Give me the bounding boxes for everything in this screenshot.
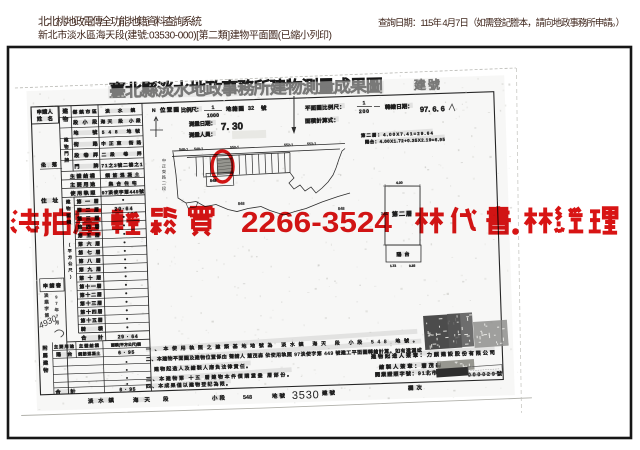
- svg-text:坐 落: 坐 落: [41, 161, 58, 169]
- svg-text:號: 號: [261, 104, 267, 112]
- svg-text:548-1: 548-1: [179, 148, 188, 152]
- svg-text:查詢日期：115年 4月7日（如需登記謄本，請向地政事務所申: 查詢日期：115年 4月7日（如需登記謄本，請向地政事務所申請。）: [378, 17, 625, 29]
- svg-text:N: N: [152, 108, 156, 114]
- svg-text:200: 200: [359, 109, 369, 115]
- svg-text:4.00: 4.00: [396, 181, 403, 185]
- svg-text:548: 548: [243, 395, 252, 401]
- svg-text:6 · 95: 6 · 95: [118, 350, 135, 357]
- svg-text:段巷弄: 段巷弄: [74, 152, 98, 160]
- svg-text:主要用途: 主要用途: [70, 181, 96, 189]
- svg-text:2266-3524: 2266-3524: [241, 207, 392, 239]
- svg-text:新北市淡水區海天段(建號:03530-000)[第二類]建物: 新北市淡水區海天段(建號:03530-000)[第二類]建物平面圖(已縮小列印): [38, 29, 332, 42]
- svg-text:申請書: 申請書: [43, 282, 61, 290]
- svg-text:548: 548: [238, 201, 246, 206]
- svg-text:97. 6. 6: 97. 6. 6: [420, 104, 445, 114]
- svg-text:552-1: 552-1: [284, 143, 293, 147]
- svg-text:0.35: 0.35: [409, 264, 416, 268]
- svg-text:主體結構: 主體結構: [70, 172, 95, 180]
- svg-text:段: 段: [163, 395, 169, 403]
- svg-text:段小段: 段小段: [73, 119, 97, 127]
- svg-text:550-1: 550-1: [230, 145, 239, 149]
- svg-text:建: 建: [61, 107, 68, 115]
- svg-text:1000: 1000: [207, 113, 219, 119]
- svg-text:物: 物: [62, 115, 68, 123]
- svg-text:門 牌: 門 牌: [74, 162, 98, 170]
- svg-text:1: 1: [362, 100, 365, 106]
- svg-text:553-1: 553-1: [307, 142, 316, 146]
- svg-text:32: 32: [248, 106, 254, 112]
- svg-text:面積(平方公尺)欄: 面積(平方公尺)欄: [111, 341, 141, 347]
- svg-text:北北桃地政電傳全功能地籍資料查詢系統: 北北桃地政電傳全功能地籍資料查詢系統: [38, 14, 202, 28]
- svg-text:6 · 95: 6 · 95: [119, 387, 136, 394]
- svg-text:地 號: 地 號: [73, 129, 97, 137]
- svg-text:1: 1: [211, 105, 214, 111]
- svg-text:1.72: 1.72: [390, 264, 397, 268]
- svg-text:鋼筋混凝土: 鋼筋混凝土: [77, 350, 100, 357]
- svg-text:屬: 屬: [43, 351, 48, 359]
- svg-text:548-1: 548-1: [194, 147, 203, 151]
- svg-text:3530: 3530: [292, 389, 320, 402]
- svg-text:街 路: 街 路: [73, 140, 99, 148]
